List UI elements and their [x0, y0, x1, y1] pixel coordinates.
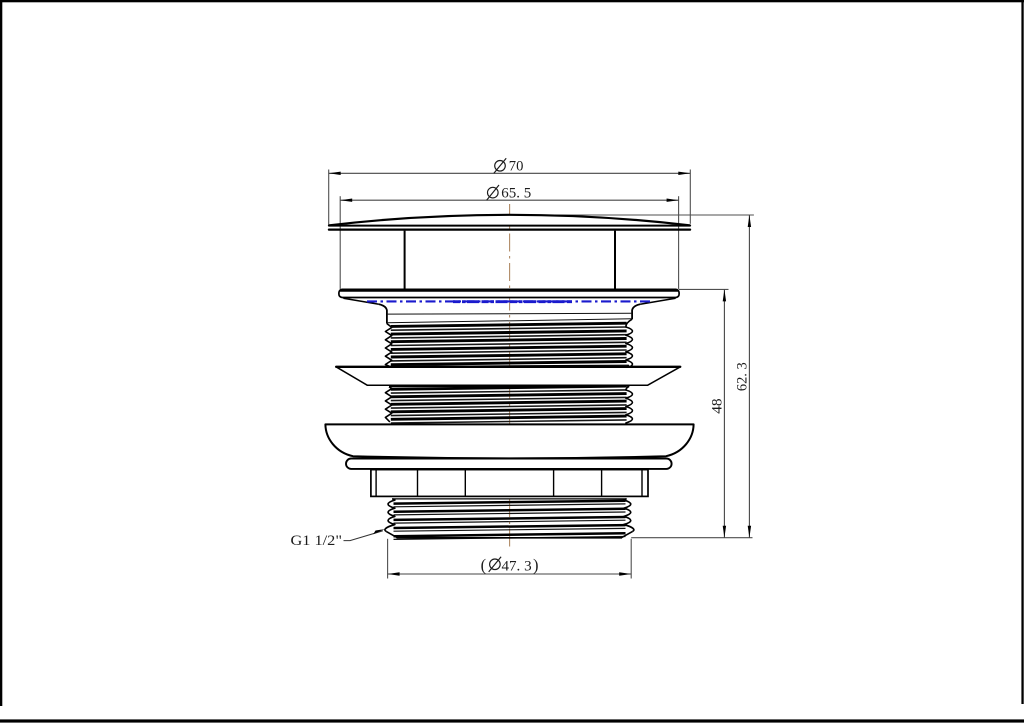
svg-text:65. 5: 65. 5 [501, 184, 531, 201]
svg-text:(: ( [481, 555, 487, 574]
svg-text:47. 3: 47. 3 [502, 557, 532, 574]
svg-text:48: 48 [709, 398, 726, 414]
svg-text:G1 1/2": G1 1/2" [291, 532, 343, 549]
svg-text:70: 70 [509, 157, 524, 174]
svg-text:): ) [533, 555, 539, 574]
svg-text:62. 3: 62. 3 [733, 362, 750, 391]
